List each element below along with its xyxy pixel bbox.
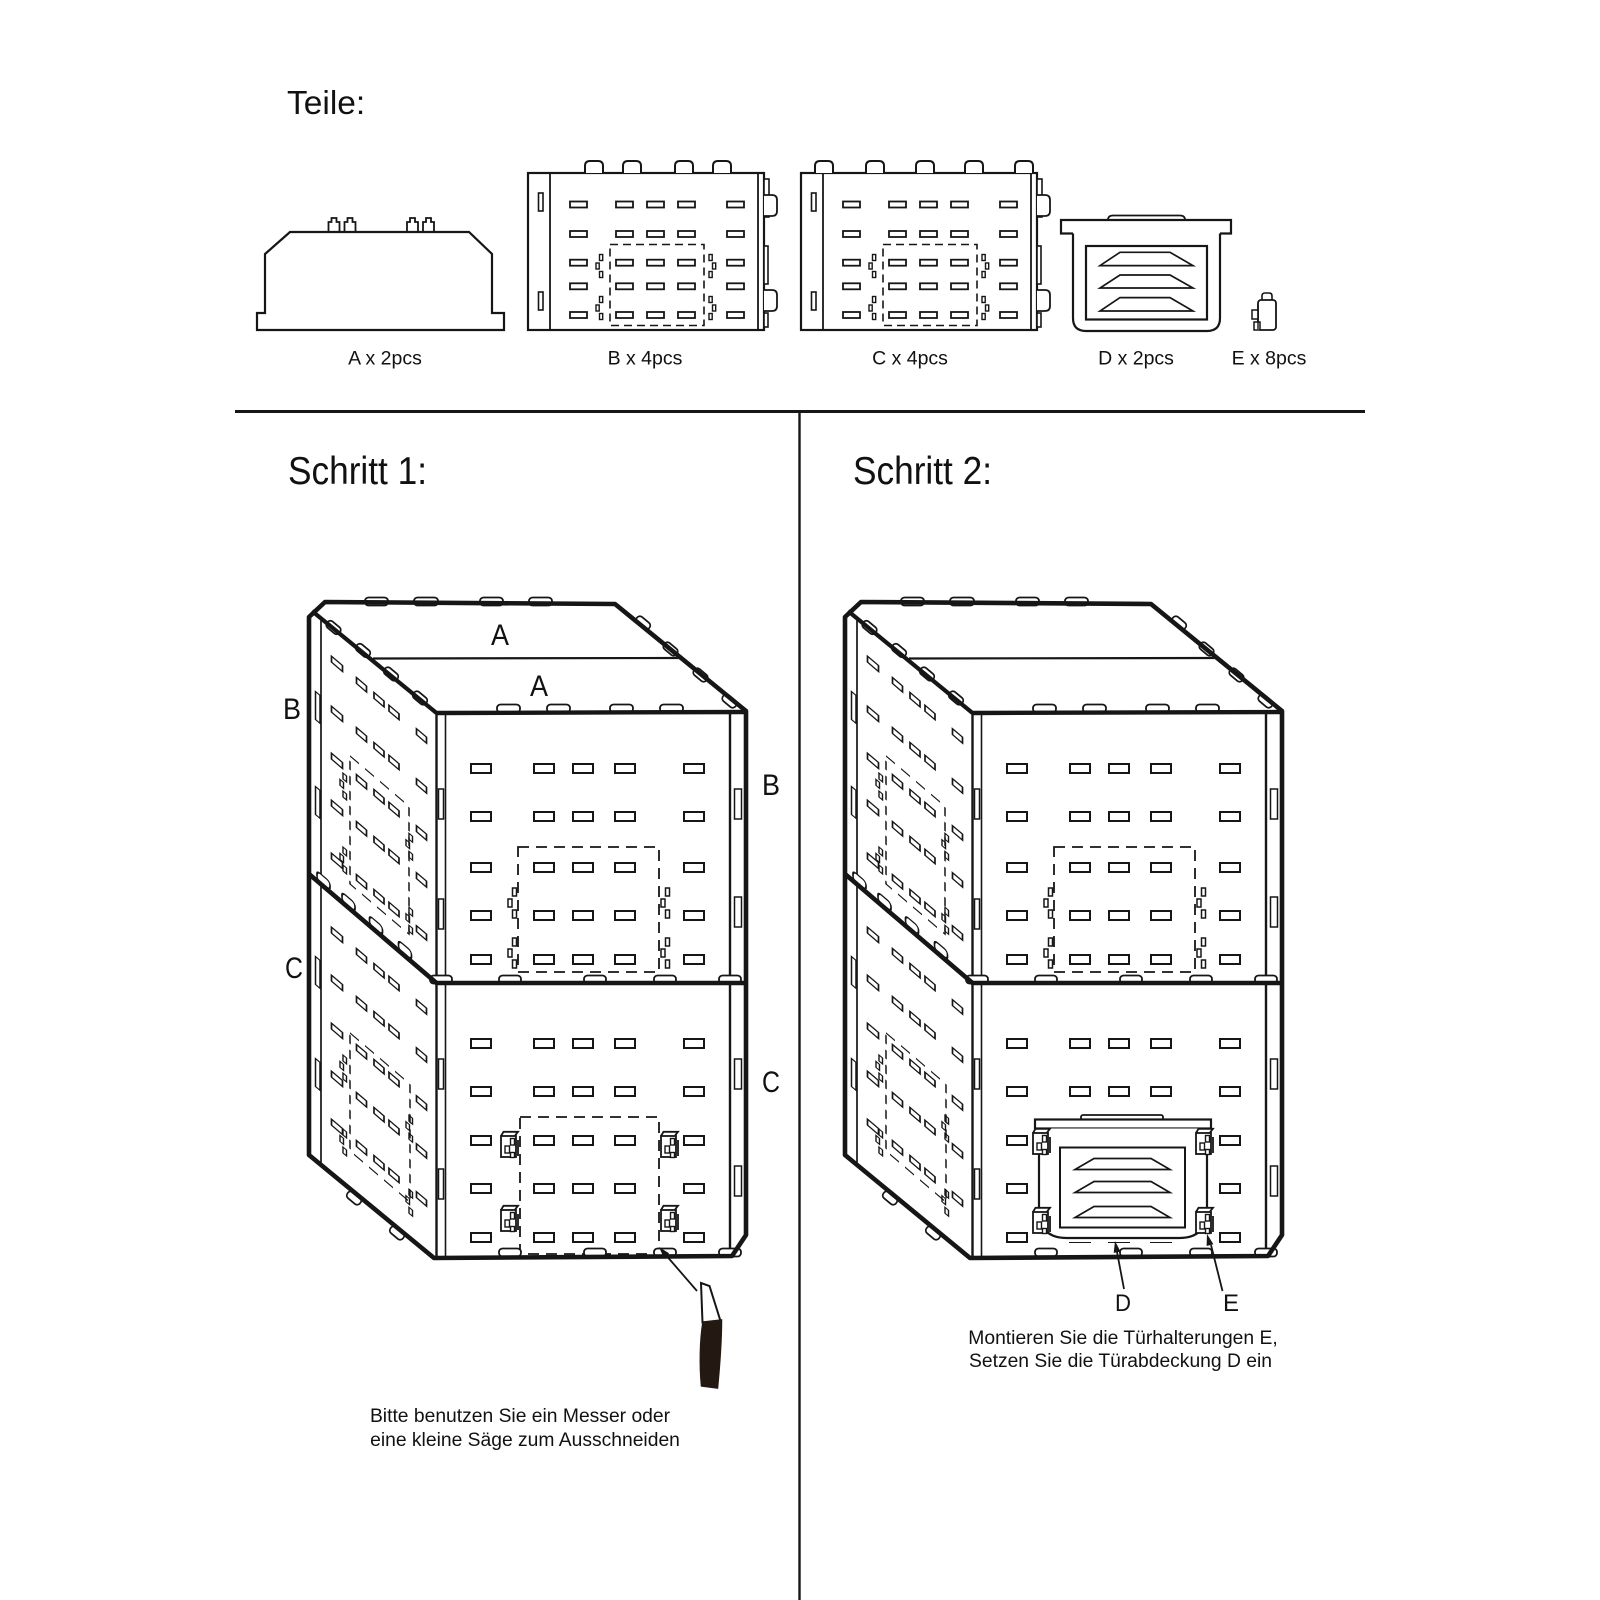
svg-text:Schritt 1:: Schritt 1:: [288, 450, 427, 493]
svg-text:eine kleine Säge zum Ausschnei: eine kleine Säge zum Ausschneiden: [370, 1430, 680, 1451]
svg-text:C: C: [285, 952, 303, 985]
svg-text:B: B: [283, 693, 301, 726]
svg-text:D: D: [1115, 1290, 1131, 1317]
svg-text:C x 4pcs: C x 4pcs: [872, 348, 948, 370]
svg-text:B x 4pcs: B x 4pcs: [608, 348, 683, 370]
svg-text:Teile:: Teile:: [287, 85, 365, 122]
svg-text:A: A: [491, 619, 509, 652]
svg-text:D x 2pcs: D x 2pcs: [1098, 348, 1174, 370]
svg-text:Schritt 2:: Schritt 2:: [853, 450, 992, 493]
svg-text:A: A: [530, 670, 548, 703]
svg-text:C: C: [762, 1066, 780, 1099]
svg-text:Setzen Sie die Türabdeckung D: Setzen Sie die Türabdeckung D ein: [969, 1351, 1272, 1372]
svg-text:B: B: [762, 769, 780, 802]
svg-text:A x 2pcs: A x 2pcs: [348, 348, 422, 370]
svg-text:Bitte benutzen Sie ein Messer: Bitte benutzen Sie ein Messer oder: [370, 1406, 671, 1427]
svg-text:E x 8pcs: E x 8pcs: [1232, 348, 1307, 370]
svg-text:Montieren Sie die Türhalterung: Montieren Sie die Türhalterungen E,: [968, 1328, 1277, 1349]
svg-text:E: E: [1223, 1290, 1239, 1317]
